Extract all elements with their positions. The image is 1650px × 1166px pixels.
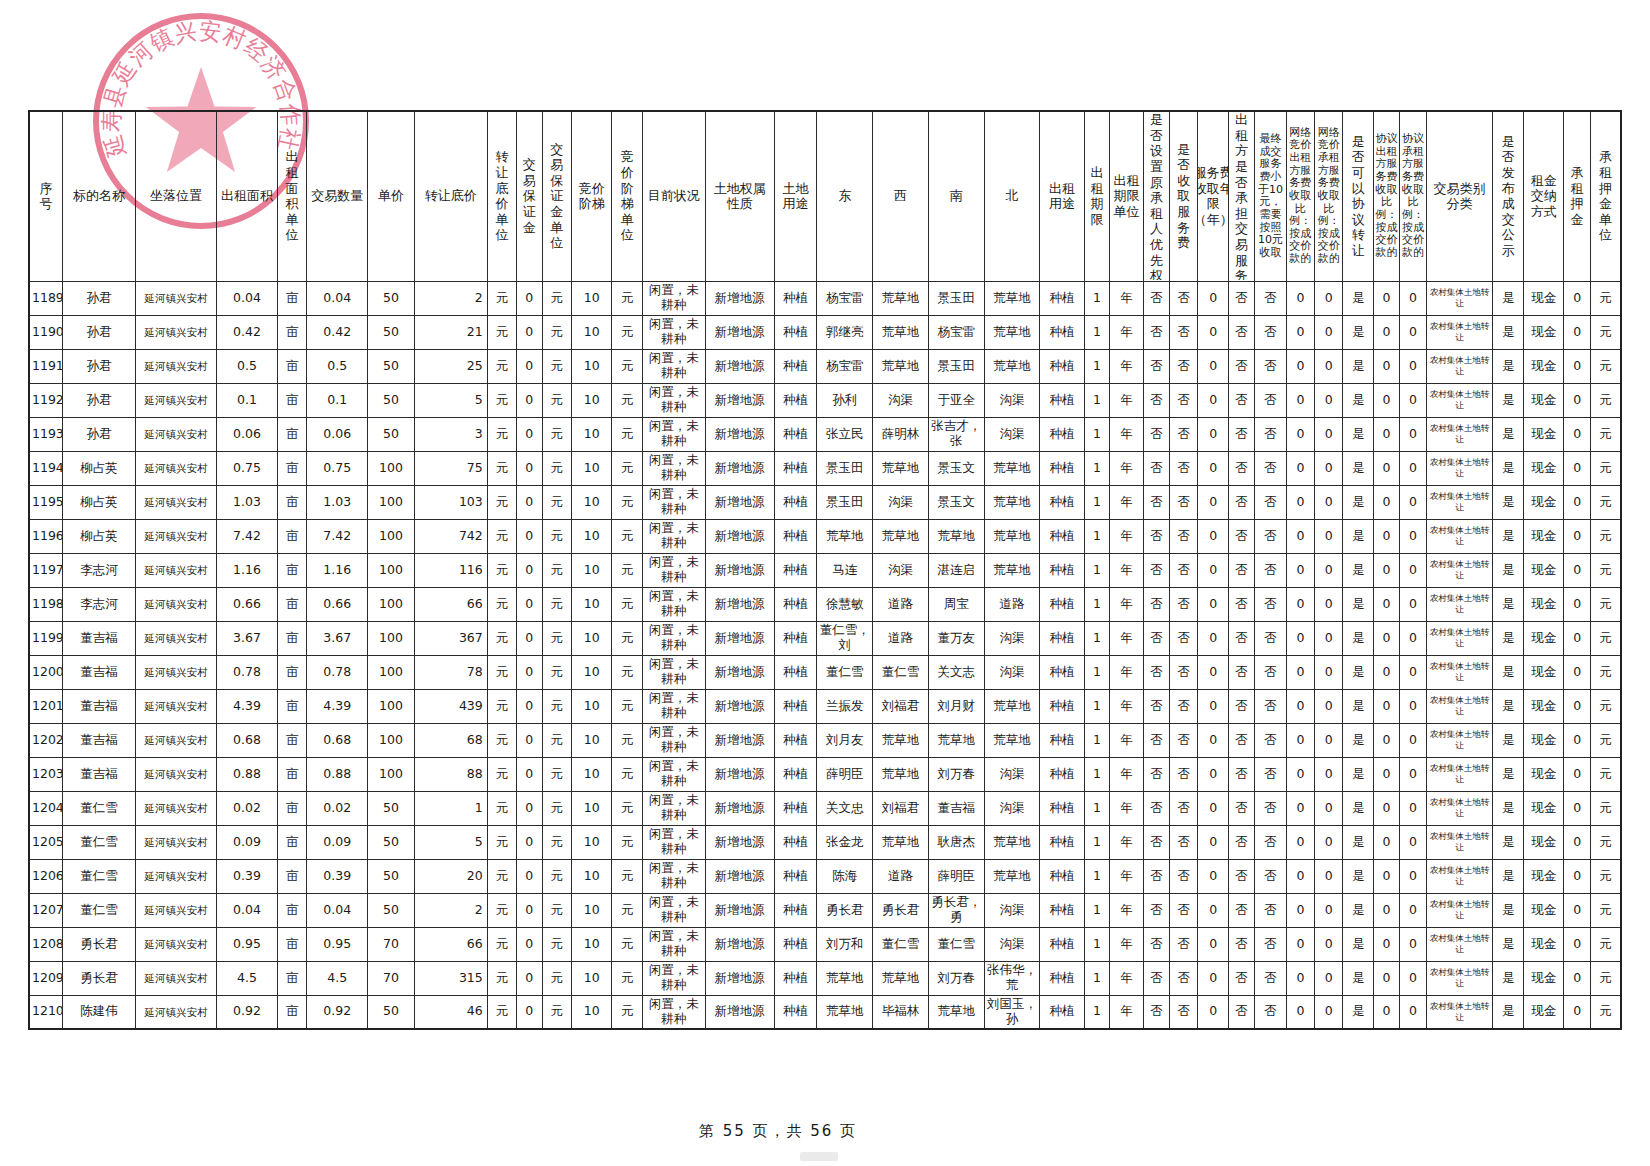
table-row: 1200董吉福延河镇兴安村0.78亩0.7810078元0元10元闲置，未耕种新… [29, 655, 1621, 689]
table-cell: 0 [517, 757, 542, 791]
table-cell: 0 [1400, 383, 1426, 417]
table-cell: 柳占英 [62, 451, 135, 485]
table-cell: 0.5 [307, 349, 368, 383]
table-cell: 元 [487, 723, 516, 757]
table-cell: 是 [1343, 349, 1373, 383]
table-cell: 新增地源 [705, 281, 774, 315]
table-cell: 现金 [1523, 995, 1564, 1029]
table-cell: 2 [414, 893, 487, 927]
table-cell: 否 [1255, 961, 1286, 995]
table-cell: 亩 [277, 655, 306, 689]
column-header-label: 服务费收取年限（年） [1198, 165, 1227, 227]
table-cell: 0 [1400, 893, 1426, 927]
table-cell: 否 [1255, 859, 1286, 893]
table-cell: 是 [1343, 485, 1373, 519]
column-header-label: 竞价阶梯单位 [615, 149, 638, 243]
table-cell: 0 [1315, 893, 1343, 927]
table-cell: 延河镇兴安村 [135, 995, 216, 1029]
table-cell: 新增地源 [705, 417, 774, 451]
table-cell: 董仁雪 [62, 825, 135, 859]
table-cell: 50 [368, 893, 415, 927]
scan-smudge [800, 1152, 838, 1161]
table-cell: 10 [571, 383, 612, 417]
table-cell: 年 [1110, 689, 1143, 723]
table-cell: 否 [1228, 485, 1254, 519]
column-header: 东 [817, 111, 873, 281]
table-cell: 367 [414, 621, 487, 655]
table-cell: 0 [1373, 621, 1399, 655]
table-cell: 0 [1286, 689, 1314, 723]
table-cell: 元 [1590, 451, 1621, 485]
table-cell: 4.39 [307, 689, 368, 723]
table-cell: 1 [1084, 825, 1109, 859]
table-cell: 0 [1198, 587, 1228, 621]
table-cell: 关文忠 [817, 791, 873, 825]
table-cell: 0 [517, 485, 542, 519]
column-header: 交易类别分类 [1426, 111, 1493, 281]
table-cell: 50 [368, 315, 415, 349]
table-cell: 董仁雪 [873, 927, 929, 961]
table-cell: 刘万春 [928, 961, 984, 995]
table-cell: 元 [1590, 757, 1621, 791]
table-cell: 1 [1084, 281, 1109, 315]
table-cell: 3 [414, 417, 487, 451]
table-cell: 0 [1373, 519, 1399, 553]
column-header: 出租面积单位 [277, 111, 306, 281]
table-cell: 元 [1590, 315, 1621, 349]
table-cell: 现金 [1523, 893, 1564, 927]
table-cell: 0.92 [217, 995, 278, 1029]
table-cell: 亩 [277, 961, 306, 995]
table-cell: 景玉田 [817, 485, 873, 519]
column-header: 服务费收取年限（年） [1198, 111, 1228, 281]
table-cell: 刘万春 [928, 757, 984, 791]
table-cell: 否 [1228, 927, 1254, 961]
table-cell: 年 [1110, 587, 1143, 621]
table-cell: 延河镇兴安村 [135, 723, 216, 757]
table-cell: 否 [1143, 553, 1169, 587]
table-cell: 董吉福 [62, 689, 135, 723]
table-cell: 道路 [873, 587, 929, 621]
table-cell: 0.75 [307, 451, 368, 485]
table-cell: 种植 [1040, 995, 1085, 1029]
table-cell: 否 [1143, 417, 1169, 451]
column-header-label: 是否收取服务费 [1173, 142, 1194, 251]
table-cell: 否 [1143, 315, 1169, 349]
table-cell: 元 [487, 553, 516, 587]
table-cell: 闲置，未耕种 [642, 791, 705, 825]
table-cell: 50 [368, 825, 415, 859]
table-cell: 66 [414, 587, 487, 621]
table-cell: 延河镇兴安村 [135, 859, 216, 893]
table-cell: 种植 [774, 859, 817, 893]
table-cell: 0 [1564, 723, 1590, 757]
table-cell: 742 [414, 519, 487, 553]
table-cell: 0 [1564, 689, 1590, 723]
table-cell: 5 [414, 383, 487, 417]
table-cell: 否 [1255, 383, 1286, 417]
table-cell: 否 [1170, 587, 1198, 621]
table-cell: 延河镇兴安村 [135, 451, 216, 485]
table-cell: 现金 [1523, 281, 1564, 315]
table-cell: 亩 [277, 689, 306, 723]
table-cell: 0 [1400, 451, 1426, 485]
table-cell: 0 [1564, 893, 1590, 927]
table-cell: 是 [1493, 315, 1523, 349]
table-cell: 元 [612, 723, 642, 757]
table-cell: 闲置，未耕种 [642, 553, 705, 587]
table-cell: 延河镇兴安村 [135, 961, 216, 995]
table-cell: 否 [1143, 349, 1169, 383]
table-cell: 1.16 [217, 553, 278, 587]
table-cell: 元 [542, 417, 571, 451]
table-cell: 0 [1315, 961, 1343, 995]
table-cell: 0 [1400, 825, 1426, 859]
table-cell: 沟渠 [984, 417, 1040, 451]
table-cell: 否 [1143, 893, 1169, 927]
table-cell: 荒草地 [817, 995, 873, 1029]
table-cell: 农村集体土地转让 [1426, 961, 1493, 995]
table-cell: 50 [368, 383, 415, 417]
table-cell: 新增地源 [705, 349, 774, 383]
table-cell: 荒草地 [873, 349, 929, 383]
table-cell: 农村集体土地转让 [1426, 757, 1493, 791]
table-cell: 100 [368, 655, 415, 689]
table-cell: 张金龙 [817, 825, 873, 859]
table-cell: 元 [1590, 791, 1621, 825]
column-header: 出租期限 [1084, 111, 1109, 281]
table-cell: 0 [1198, 417, 1228, 451]
table-cell: 种植 [1040, 655, 1085, 689]
header-row: 序号标的名称坐落位置出租面积出租面积单位交易数量单价转让底价转让底价单位交易保证… [29, 111, 1621, 281]
table-cell: 闲置，未耕种 [642, 451, 705, 485]
table-cell: 亩 [277, 383, 306, 417]
table-cell: 延河镇兴安村 [135, 655, 216, 689]
table-cell: 年 [1110, 893, 1143, 927]
table-cell: 元 [612, 553, 642, 587]
table-row: 1198李志河延河镇兴安村0.66亩0.6610066元0元10元闲置，未耕种新… [29, 587, 1621, 621]
table-cell: 种植 [774, 961, 817, 995]
table-cell: 亩 [277, 587, 306, 621]
table-cell: 董吉福 [62, 723, 135, 757]
table-cell: 种植 [774, 927, 817, 961]
table-cell: 元 [487, 689, 516, 723]
table-cell: 否 [1255, 757, 1286, 791]
table-cell: 闲置，未耕种 [642, 723, 705, 757]
table-cell: 0 [1315, 315, 1343, 349]
table-cell: 10 [571, 315, 612, 349]
table-cell: 新增地源 [705, 723, 774, 757]
table-cell: 种植 [1040, 825, 1085, 859]
table-cell: 沟渠 [984, 893, 1040, 927]
table-cell: 0 [1198, 791, 1228, 825]
table-cell: 薛明臣 [817, 757, 873, 791]
table-row: 1195柳占英延河镇兴安村1.03亩1.03100103元0元10元闲置，未耕种… [29, 485, 1621, 519]
table-cell: 亩 [277, 825, 306, 859]
table-cell: 闲置，未耕种 [642, 349, 705, 383]
table-cell: 年 [1110, 757, 1143, 791]
table-cell: 元 [612, 893, 642, 927]
column-header-label: 租金交纳方式 [1527, 173, 1561, 220]
table-cell: 1192 [29, 383, 62, 417]
table-cell: 延河镇兴安村 [135, 825, 216, 859]
table-cell: 1210 [29, 995, 62, 1029]
table-cell: 徐慧敏 [817, 587, 873, 621]
table-cell: 0 [1315, 757, 1343, 791]
table-cell: 延河镇兴安村 [135, 281, 216, 315]
column-header: 租金交纳方式 [1523, 111, 1564, 281]
table-cell: 10 [571, 485, 612, 519]
table-cell: 0.1 [217, 383, 278, 417]
table-cell: 陈建伟 [62, 995, 135, 1029]
table-cell: 闲置，未耕种 [642, 281, 705, 315]
table-cell: 0 [1286, 927, 1314, 961]
column-header-label: 西 [894, 188, 907, 204]
table-cell: 农村集体土地转让 [1426, 723, 1493, 757]
table-cell: 0 [1198, 451, 1228, 485]
table-cell: 否 [1143, 961, 1169, 995]
table-cell: 勇长君 [62, 927, 135, 961]
table-cell: 0 [1373, 859, 1399, 893]
table-cell: 元 [1590, 825, 1621, 859]
table-cell: 0.88 [307, 757, 368, 791]
table-cell: 0 [1564, 791, 1590, 825]
table-cell: 0.09 [307, 825, 368, 859]
table-cell: 亩 [277, 621, 306, 655]
table-cell: 种植 [1040, 281, 1085, 315]
table-cell: 否 [1228, 315, 1254, 349]
table-cell: 0 [1315, 791, 1343, 825]
table-cell: 元 [487, 281, 516, 315]
table-cell: 闲置，未耕种 [642, 825, 705, 859]
table-cell: 0 [1286, 349, 1314, 383]
table-cell: 否 [1255, 451, 1286, 485]
table-cell: 新增地源 [705, 961, 774, 995]
table-cell: 是 [1493, 349, 1523, 383]
table-cell: 元 [542, 961, 571, 995]
table-cell: 元 [487, 621, 516, 655]
table-cell: 刘国玉，孙 [984, 995, 1040, 1029]
table-cell: 种植 [1040, 927, 1085, 961]
table-cell: 种植 [1040, 859, 1085, 893]
table-cell: 荒草地 [984, 553, 1040, 587]
table-cell: 100 [368, 757, 415, 791]
column-header-label: 坐落位置 [150, 188, 202, 204]
table-cell: 0 [1198, 485, 1228, 519]
table-cell: 0.04 [307, 893, 368, 927]
table-cell: 4.39 [217, 689, 278, 723]
table-cell: 0 [1286, 723, 1314, 757]
table-cell: 延河镇兴安村 [135, 791, 216, 825]
table-cell: 年 [1110, 995, 1143, 1029]
table-cell: 0 [1373, 315, 1399, 349]
table-cell: 种植 [774, 281, 817, 315]
table-cell: 否 [1170, 519, 1198, 553]
table-cell: 荒草地 [873, 723, 929, 757]
table-cell: 否 [1228, 859, 1254, 893]
table-cell: 闲置，未耕种 [642, 757, 705, 791]
table-cell: 100 [368, 621, 415, 655]
column-header-label: 网络竞价出租方服务费收取比例：按成交价款的 [1287, 127, 1314, 266]
table-cell: 年 [1110, 723, 1143, 757]
table-cell: 1190 [29, 315, 62, 349]
table-cell: 闲置，未耕种 [642, 587, 705, 621]
table-cell: 荒草地 [873, 519, 929, 553]
table-cell: 景玉文 [928, 485, 984, 519]
table-cell: 否 [1170, 927, 1198, 961]
table-cell: 70 [368, 927, 415, 961]
table-cell: 现金 [1523, 825, 1564, 859]
table-cell: 是 [1493, 281, 1523, 315]
table-cell: 元 [1590, 553, 1621, 587]
table-cell: 元 [542, 315, 571, 349]
table-cell: 元 [1590, 519, 1621, 553]
table-cell: 沟渠 [984, 383, 1040, 417]
table-cell: 亩 [277, 791, 306, 825]
table-cell: 年 [1110, 621, 1143, 655]
table-cell: 0 [517, 723, 542, 757]
table-cell: 1 [1084, 315, 1109, 349]
table-cell: 否 [1228, 723, 1254, 757]
table-cell: 孙利 [817, 383, 873, 417]
table-cell: 100 [368, 553, 415, 587]
table-cell: 是 [1493, 723, 1523, 757]
table-cell: 延河镇兴安村 [135, 621, 216, 655]
column-header-label: 序号 [33, 181, 59, 212]
table-cell: 3.67 [307, 621, 368, 655]
table-cell: 元 [612, 587, 642, 621]
table-cell: 现金 [1523, 655, 1564, 689]
table-cell: 孙君 [62, 281, 135, 315]
table-cell: 100 [368, 485, 415, 519]
table-cell: 种植 [774, 553, 817, 587]
table-cell: 0 [1564, 519, 1590, 553]
table-cell: 1 [1084, 859, 1109, 893]
table-cell: 否 [1255, 791, 1286, 825]
table-cell: 张伟华，荒 [984, 961, 1040, 995]
table-cell: 延河镇兴安村 [135, 927, 216, 961]
table-cell: 亩 [277, 553, 306, 587]
table-cell: 董吉福 [928, 791, 984, 825]
table-cell: 荒草地 [984, 689, 1040, 723]
table-cell: 1202 [29, 723, 62, 757]
table-cell: 0.02 [217, 791, 278, 825]
table-cell: 0 [1564, 927, 1590, 961]
table-cell: 0 [1564, 655, 1590, 689]
table-cell: 0 [1564, 961, 1590, 995]
table-cell: 0.66 [307, 587, 368, 621]
table-cell: 是 [1493, 927, 1523, 961]
table-cell: 0.04 [217, 281, 278, 315]
table-cell: 农村集体土地转让 [1426, 689, 1493, 723]
column-header: 出租面积 [217, 111, 278, 281]
table-cell: 1194 [29, 451, 62, 485]
table-cell: 7.42 [217, 519, 278, 553]
table-cell: 荒草地 [984, 315, 1040, 349]
table-row: 1193孙君延河镇兴安村0.06亩0.06503元0元10元闲置，未耕种新增地源… [29, 417, 1621, 451]
table-cell: 0 [1373, 587, 1399, 621]
column-header-label: 承租押金单位 [1594, 149, 1617, 243]
table-cell: 薛明林 [873, 417, 929, 451]
table-cell: 10 [571, 553, 612, 587]
table-cell: 孙君 [62, 315, 135, 349]
table-cell: 元 [612, 315, 642, 349]
table-cell: 杨宝雷 [817, 281, 873, 315]
table-cell: 种植 [774, 621, 817, 655]
table-cell: 1 [1084, 995, 1109, 1029]
table-cell: 0.06 [307, 417, 368, 451]
column-header: 坐落位置 [135, 111, 216, 281]
table-cell: 21 [414, 315, 487, 349]
table-cell: 农村集体土地转让 [1426, 519, 1493, 553]
table-cell: 年 [1110, 859, 1143, 893]
table-cell: 1 [1084, 621, 1109, 655]
table-cell: 否 [1255, 315, 1286, 349]
table-cell: 1 [1084, 723, 1109, 757]
table-cell: 1 [414, 791, 487, 825]
table-cell: 农村集体土地转让 [1426, 859, 1493, 893]
table-cell: 0 [1198, 349, 1228, 383]
table-cell: 否 [1228, 621, 1254, 655]
table-cell: 否 [1255, 621, 1286, 655]
table-cell: 柳占英 [62, 485, 135, 519]
column-header-label: 协议承租方服务费收取比例：按成交价款的 [1400, 133, 1425, 259]
column-header-label: 标的名称 [73, 188, 125, 204]
table-cell: 否 [1228, 791, 1254, 825]
table-cell: 78 [414, 655, 487, 689]
table-cell: 元 [1590, 587, 1621, 621]
table-cell: 元 [487, 417, 516, 451]
table-cell: 元 [487, 961, 516, 995]
table-cell: 新增地源 [705, 995, 774, 1029]
table-cell: 1205 [29, 825, 62, 859]
table-cell: 否 [1170, 723, 1198, 757]
table-cell: 1204 [29, 791, 62, 825]
table-cell: 否 [1143, 927, 1169, 961]
table-cell: 0.39 [217, 859, 278, 893]
table-cell: 新增地源 [705, 927, 774, 961]
table-cell: 0 [1315, 655, 1343, 689]
table-cell: 亩 [277, 349, 306, 383]
table-cell: 0 [1198, 927, 1228, 961]
table-cell: 0 [1564, 859, 1590, 893]
page-indicator: 第 55 页，共 56 页 [699, 1122, 857, 1141]
column-header: 交易保证金单位 [542, 111, 571, 281]
table-cell: 否 [1170, 757, 1198, 791]
table-cell: 新增地源 [705, 485, 774, 519]
table-cell: 10 [571, 825, 612, 859]
table-cell: 20 [414, 859, 487, 893]
table-row: 1206董仁雪延河镇兴安村0.39亩0.395020元0元10元闲置，未耕种新增… [29, 859, 1621, 893]
table-cell: 景玉田 [817, 451, 873, 485]
table-cell: 种植 [1040, 961, 1085, 995]
table-cell: 是 [1343, 553, 1373, 587]
table-cell: 否 [1143, 621, 1169, 655]
table-cell: 元 [542, 587, 571, 621]
table-cell: 否 [1255, 825, 1286, 859]
table-cell: 0 [1315, 281, 1343, 315]
table-cell: 元 [612, 349, 642, 383]
table-cell: 否 [1170, 485, 1198, 519]
table-cell: 0 [1286, 485, 1314, 519]
table-cell: 是 [1493, 655, 1523, 689]
table-cell: 农村集体土地转让 [1426, 383, 1493, 417]
table-cell: 1 [1084, 655, 1109, 689]
table-cell: 种植 [774, 689, 817, 723]
table-cell: 0 [1564, 825, 1590, 859]
table-cell: 种植 [1040, 519, 1085, 553]
table-cell: 年 [1110, 927, 1143, 961]
